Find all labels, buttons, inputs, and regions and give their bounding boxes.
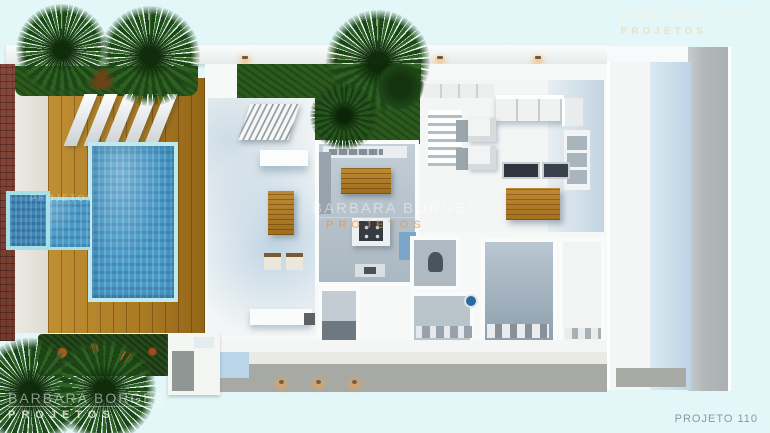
watermark-center-line1: BARBARA BORGES (312, 200, 479, 218)
palm-tree (16, 4, 108, 96)
watermark-top-right-line1: BARBARA BORGES (621, 8, 760, 24)
shower-strip (416, 326, 472, 338)
low-cabinet (250, 309, 312, 325)
front-walkway (205, 340, 607, 392)
skylight (194, 337, 214, 348)
kitchen-table (341, 168, 391, 194)
armchair (468, 146, 496, 170)
toilet (428, 252, 443, 272)
watermark-pool-text: PROJETOS (30, 193, 94, 203)
entry-structure (168, 333, 220, 395)
stool (286, 253, 303, 270)
vanity-counter (565, 328, 601, 339)
palm-tree (100, 6, 200, 106)
armchair (468, 118, 496, 142)
wall-light (535, 56, 541, 59)
stool (264, 253, 281, 270)
service-court (607, 62, 691, 390)
console-table (260, 150, 308, 166)
staircase (238, 104, 300, 140)
watermark-bottom-left-line2: PROJETOS (8, 409, 166, 421)
counter-appliances (329, 149, 383, 155)
project-number-label: PROJETO 110 (675, 413, 758, 425)
walkway-light (279, 380, 284, 384)
closet-suite (481, 238, 557, 344)
oven-unit (355, 264, 385, 277)
watermark-top-right: BARBARA BORGES PROJETOS (621, 8, 760, 37)
wall-cabinet (424, 84, 494, 98)
watermark-top-right-line2: PROJETOS (621, 26, 760, 37)
washbasin (464, 294, 478, 308)
front-door-glass (215, 352, 249, 378)
watermark-center-line2: PROJETOS (326, 219, 479, 231)
dark-bench (304, 313, 315, 325)
oven-door (364, 267, 376, 274)
side-table (456, 120, 468, 142)
bathroom-main (410, 292, 474, 344)
swimming-pool (88, 142, 178, 302)
shelf-unit (564, 130, 590, 190)
toilet-room (410, 236, 460, 290)
court-shaded-floor (650, 62, 691, 390)
suite-room (559, 238, 605, 344)
watermark-center: BARBARA BORGES PROJETOS (312, 200, 479, 231)
palm-tree (310, 82, 378, 150)
court-top-wall (607, 46, 688, 62)
wall-light (437, 56, 443, 59)
coffee-table (502, 162, 540, 179)
coffee-table (542, 162, 570, 179)
sofa (496, 95, 564, 121)
walkway-light (352, 380, 357, 384)
bathroom-small (318, 287, 360, 345)
side-roof-strip (688, 47, 731, 391)
watermark-bottom-left-line1: BARBARA BORGES (8, 390, 166, 407)
side-table (456, 148, 468, 170)
vanity-counter (487, 324, 549, 338)
wood-area-rug (506, 188, 560, 220)
watermark-bottom-left: BARBARA BORGES PROJETOS (8, 390, 166, 421)
shower-floor (322, 321, 356, 341)
court-end-pavement (616, 368, 686, 387)
garden-bush (376, 62, 424, 110)
entry-opening (172, 351, 194, 391)
hall-dining-table (268, 191, 294, 235)
project-number-text: PROJETO 110 (675, 413, 758, 425)
wall-light (242, 56, 248, 59)
watermark-pool: PROJETOS (30, 193, 94, 203)
corner-seat (562, 98, 583, 126)
walkway-light (316, 380, 321, 384)
entry-hall-floor (208, 98, 315, 336)
floorplan-render: PROJETOS BARBARA BORGES PROJETOS BARBARA… (0, 0, 770, 433)
